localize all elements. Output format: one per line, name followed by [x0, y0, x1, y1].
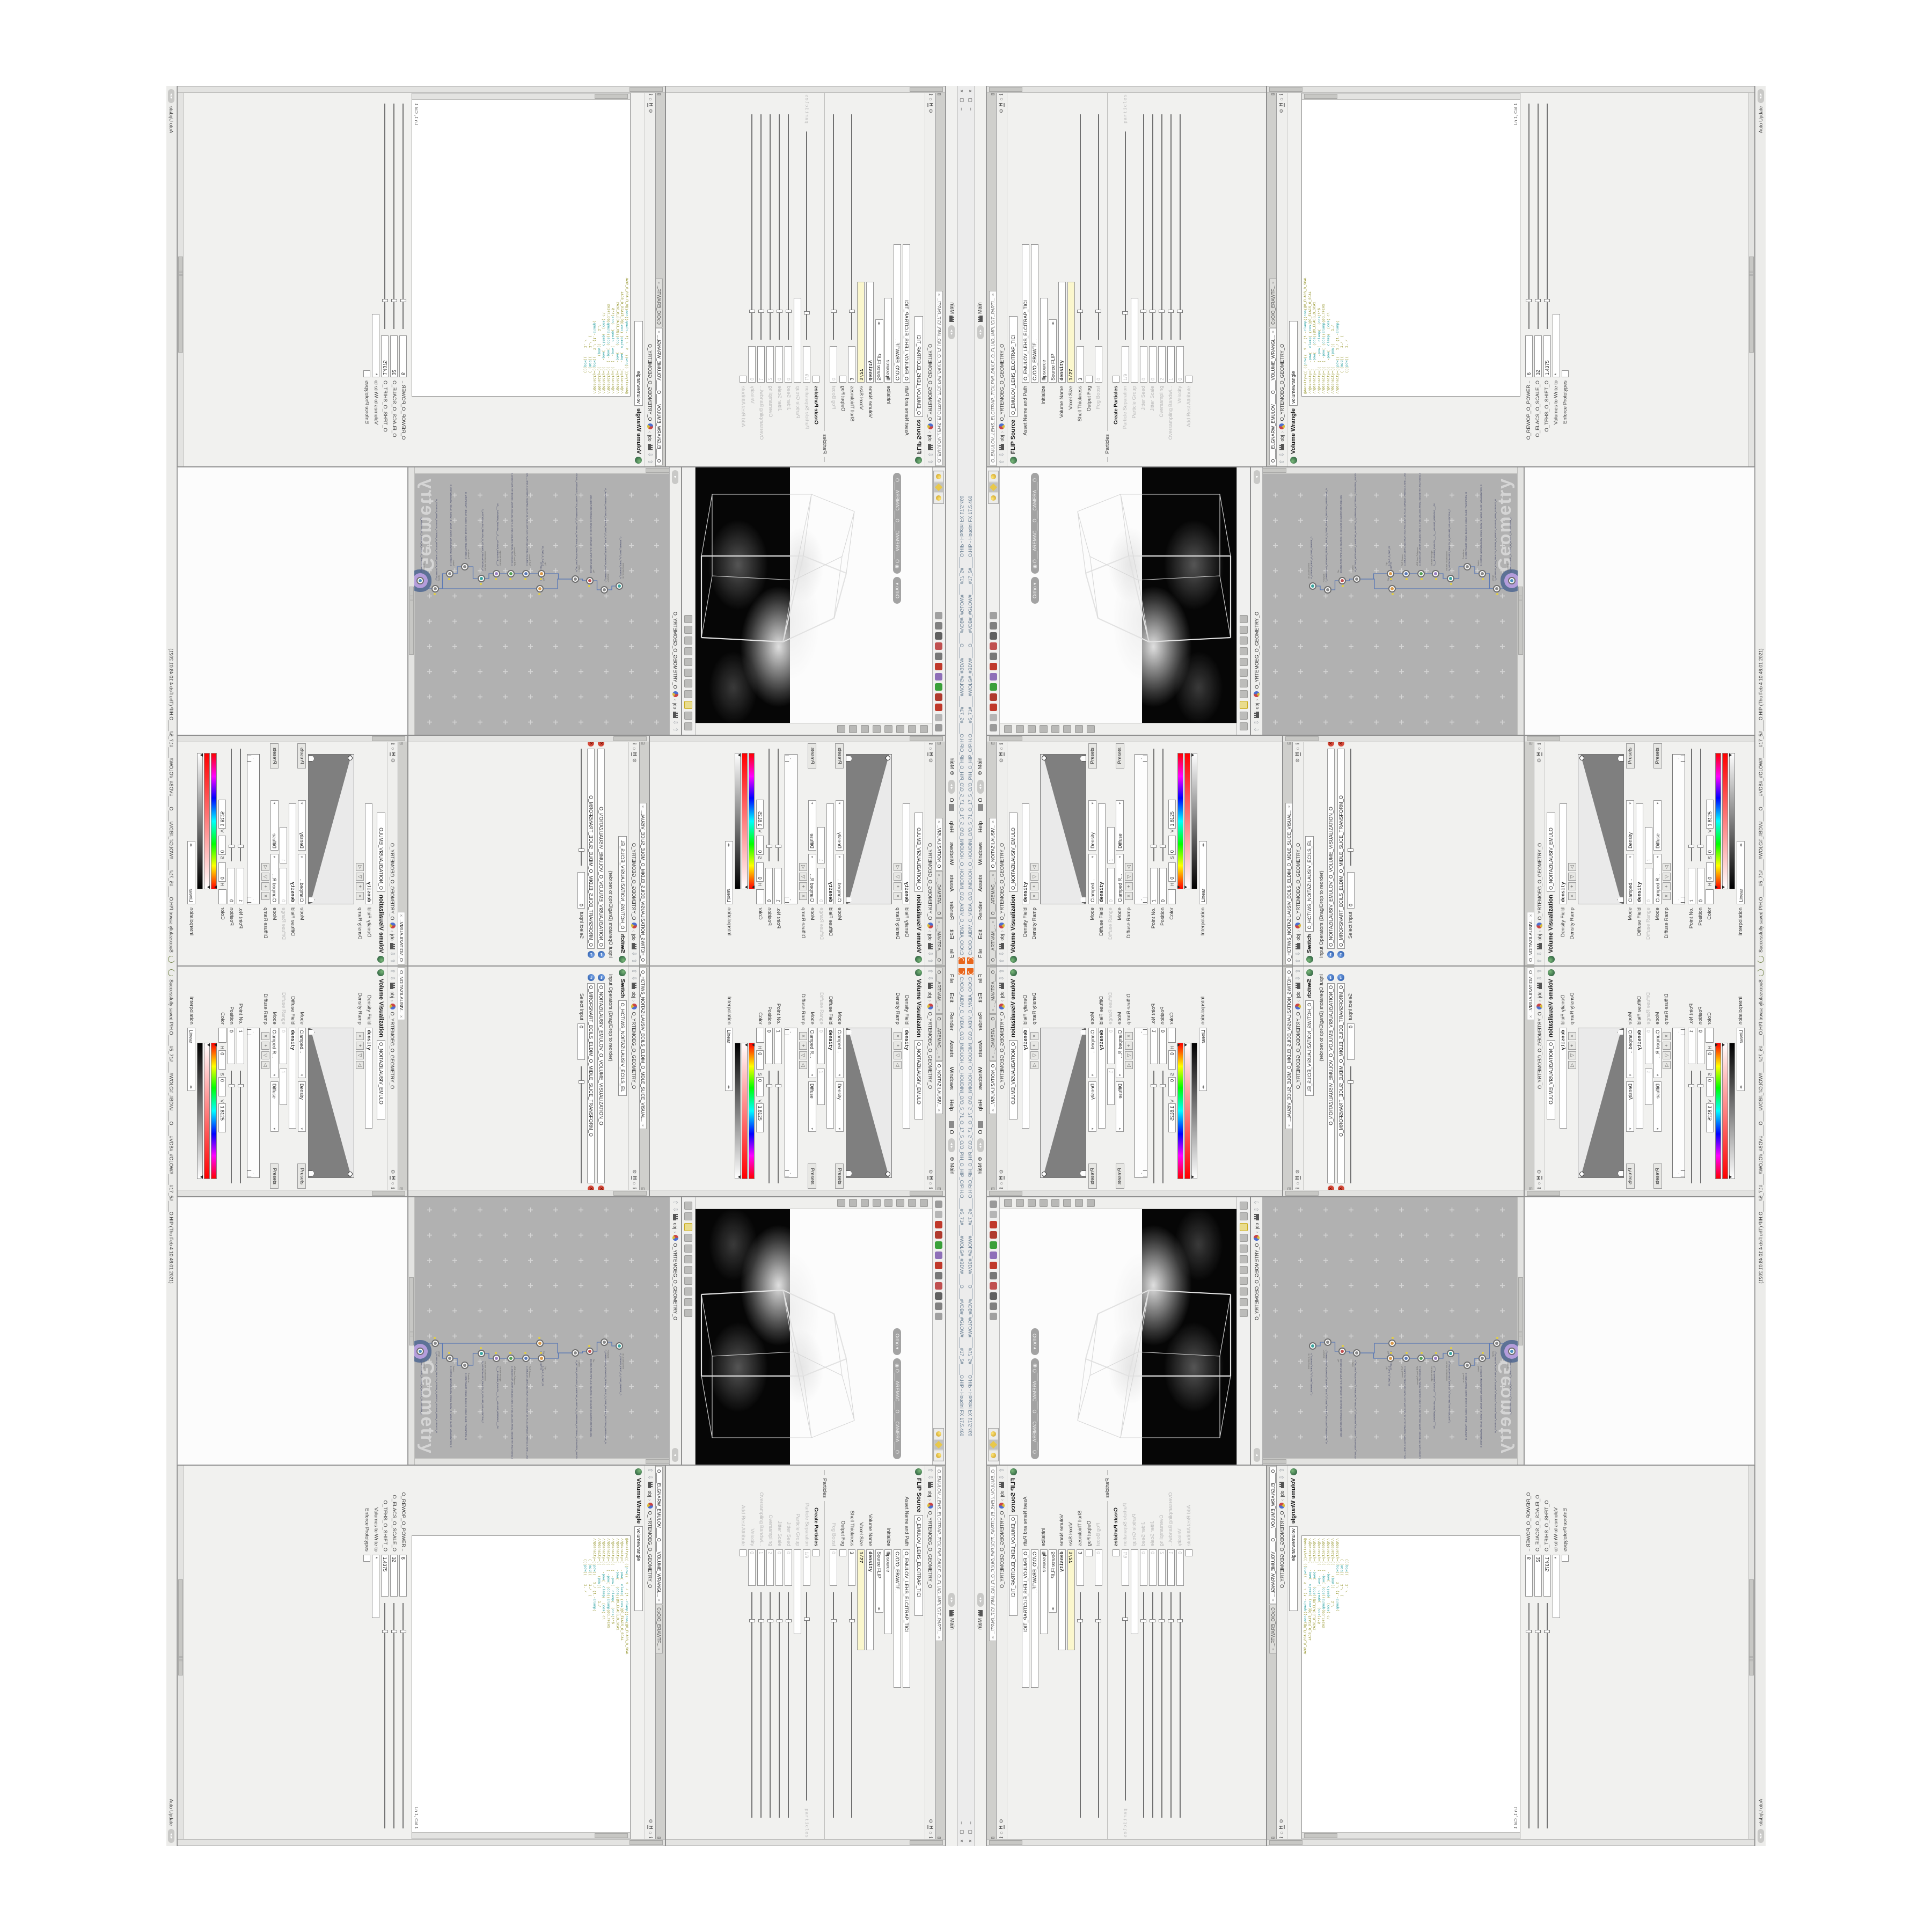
slider-handle[interactable] — [229, 845, 235, 848]
pane-tab[interactable]: O_NOITAZILAUSIV...× — [398, 968, 405, 1020]
dropdown-select[interactable]: Clamped R...▾ — [1116, 854, 1124, 904]
network-editor[interactable]: ⇧ ⇩ obj› O_YRTEMOEG_O_GEOMETRY_O ◂ — [1250, 467, 1524, 735]
param-slider[interactable] — [1700, 749, 1701, 861]
ramp-delete-icon[interactable]: × — [1125, 892, 1133, 900]
slider-handle[interactable] — [383, 299, 389, 302]
breadcrumb-path[interactable]: O_YRTEMOEG_O_GEOMETRY_O — [648, 344, 653, 421]
param-field[interactable]: flipsource — [885, 1549, 892, 1634]
tab-close-icon[interactable]: × — [936, 1109, 941, 1111]
menu-assets[interactable]: Assets — [977, 870, 984, 897]
ramp-prev-icon[interactable]: ◁ — [1568, 1061, 1576, 1069]
slider-handle[interactable] — [1697, 1084, 1703, 1087]
density-ramp-widget[interactable] — [308, 1028, 354, 1178]
pane-tab[interactable]: O_EMULOV_LEHS_ELCITRAP_TICILPMI_DIULF_O_… — [936, 291, 943, 465]
slider-handle[interactable] — [776, 845, 782, 848]
viewport-tool-icon[interactable] — [990, 1241, 997, 1249]
network-node[interactable]: Volume VisualizationO_NOITAZILAUSIV_EMUL… — [478, 1350, 485, 1357]
node-flag-dot[interactable] — [495, 1352, 497, 1354]
dropdown-select[interactable]: Linear◂▸ — [1737, 841, 1745, 904]
network-hscrollbar[interactable]: ⠿⠿ — [1517, 1197, 1524, 1465]
node-name-field[interactable]: O_HCTIWS_NOITAZILAUSIV_ECILS_EL — [618, 836, 627, 932]
breadcrumb-path[interactable]: O_YRTEMOEG_O_GEOMETRY_O — [928, 344, 933, 421]
param-field[interactable]: C:/O/O_ERAWTF... — [894, 244, 902, 383]
slider-handle[interactable] — [1095, 1619, 1101, 1622]
scene-viewport[interactable]: Ortho ▾ ◉ O___AREMAC___O___CAMERA___O — [986, 1197, 1250, 1465]
sat-marker[interactable] — [207, 885, 210, 889]
context-label[interactable]: obj — [999, 435, 1005, 442]
menu-edit[interactable]: Edit — [949, 988, 955, 1007]
param-value-field[interactable]: density — [365, 803, 373, 904]
network-path[interactable]: O_YRTEMOEG_O_GEOMETRY_O — [1254, 1243, 1260, 1320]
pane-scrollbar[interactable] — [1267, 1839, 1754, 1846]
slider-handle[interactable] — [759, 310, 765, 313]
ramp-add-icon[interactable]: + — [1568, 1042, 1576, 1050]
viewport-mode-icon[interactable] — [1051, 1199, 1059, 1207]
ramp-flip-icon[interactable]: ▽ — [1663, 873, 1671, 881]
gear-icon[interactable]: ⚙ — [999, 1819, 1005, 1824]
param-value-field[interactable]: density — [1022, 803, 1029, 904]
houdini-help-icon[interactable]: H — [1537, 1176, 1542, 1180]
node-name-field[interactable]: O_NOITAZILAUSIV_EMULO — [377, 813, 385, 892]
code-vscrollbar[interactable] — [1302, 1832, 1520, 1839]
param-field[interactable]: flipsource — [1040, 298, 1048, 383]
viewport-mode-icon[interactable] — [920, 1199, 928, 1207]
ramp-flip-icon[interactable]: ▽ — [894, 873, 902, 881]
nav-down-icon[interactable]: ⇩ — [1279, 1475, 1285, 1480]
tab-close-icon[interactable]: × — [640, 806, 645, 808]
tab-close-icon[interactable]: × — [991, 1109, 996, 1111]
presets-button[interactable]: Presets — [1088, 743, 1097, 769]
dropdown-select[interactable]: Clamped R...▾ — [1653, 854, 1662, 904]
network-node[interactable]: SwitchO_HCTIWS_YRTEMOEG_LANRETXE_LANRETN… — [572, 575, 579, 583]
pane-scrollbar[interactable] — [1525, 736, 1754, 742]
param-field[interactable]: 0 — [1159, 868, 1167, 904]
ramp-flip-icon[interactable]: ▽ — [799, 873, 807, 881]
viewport-mode-icon[interactable] — [1075, 725, 1083, 733]
slider-handle[interactable] — [383, 1630, 389, 1633]
slider-handle[interactable] — [831, 310, 837, 313]
menu-file[interactable]: File — [949, 969, 955, 988]
color-swatch[interactable] — [218, 889, 226, 904]
checkbox[interactable] — [1086, 376, 1093, 383]
viewport-tool-icon[interactable] — [990, 1292, 997, 1300]
pane-tab[interactable]: C:/O/O_ERAWTF...× — [1269, 279, 1276, 327]
nav-down-icon[interactable]: ⇩ — [1254, 1207, 1260, 1212]
param-slider[interactable] — [1350, 749, 1351, 866]
dropdown-select[interactable]: Source FLIP◂▸ — [1049, 1549, 1057, 1613]
pane-tab[interactable]: O_HCTIWS_NOITAZILAUSIV_ECILS_ELDIM_O_MDL… — [1285, 968, 1292, 1129]
slider-handle[interactable] — [1697, 845, 1703, 848]
breadcrumb-path[interactable]: O_YRTEMOEG_O_GEOMETRY_O — [1296, 843, 1301, 920]
ramp-point-marker[interactable] — [1679, 1029, 1685, 1035]
ramp-add-icon[interactable]: + — [1663, 882, 1671, 890]
slider-handle[interactable] — [777, 1619, 783, 1622]
value-gradient[interactable] — [735, 753, 741, 889]
param-slider[interactable] — [1161, 114, 1162, 340]
param-field[interactable] — [1131, 1549, 1138, 1634]
param-slider[interactable] — [1125, 1592, 1126, 1801]
display-option-icon[interactable] — [1240, 1309, 1248, 1317]
display-option-icon[interactable] — [1240, 1266, 1248, 1274]
viewport-tool-icon[interactable] — [935, 1252, 943, 1259]
breadcrumb-path[interactable]: O_YRTEMOEG_O_GEOMETRY_O — [648, 1511, 653, 1588]
checkbox[interactable] — [813, 1549, 819, 1556]
node-flag-dot[interactable] — [1390, 1352, 1392, 1354]
viewport-tool-icon[interactable] — [990, 1313, 997, 1320]
display-option-icon[interactable] — [685, 690, 693, 698]
gear-icon[interactable]: ⚙ — [647, 1819, 653, 1824]
hue-gradient[interactable] — [1177, 753, 1183, 889]
presets-button[interactable]: Presets — [808, 1163, 817, 1189]
viewport-mode-icon[interactable] — [896, 725, 904, 733]
hue-gradient[interactable] — [211, 1043, 217, 1179]
param-slider[interactable] — [1153, 749, 1154, 861]
viewport-tool-icon[interactable] — [935, 1221, 943, 1228]
val-marker[interactable] — [1729, 1175, 1732, 1179]
menu-windows[interactable]: Windows — [949, 1062, 955, 1095]
pane-scrollbar[interactable] — [178, 736, 407, 742]
context-label[interactable]: obj — [1537, 991, 1542, 998]
param-slider[interactable] — [1098, 1592, 1099, 1818]
display-option-icon[interactable] — [1240, 690, 1248, 698]
network-node[interactable]: Volume VisualizationO_NOITAZILAUSIV_EMUL… — [1447, 1350, 1454, 1357]
desktop-tab-main-right[interactable]: Main — [977, 1610, 983, 1630]
hsv-field[interactable]: 1.8125 — [757, 1103, 764, 1132]
tab-close-icon[interactable]: × — [936, 921, 941, 924]
param-slider[interactable] — [852, 1592, 853, 1818]
dropdown-select[interactable]: Clamped R...▾ — [1653, 1028, 1662, 1078]
param-field[interactable]: 1 — [1688, 868, 1695, 904]
color-swatch[interactable] — [1168, 1028, 1176, 1043]
range-field[interactable]: 1 — [1645, 827, 1652, 863]
node-flag-dot[interactable] — [448, 1352, 450, 1354]
param-value-field[interactable]: density — [1058, 1549, 1066, 1650]
param-field[interactable]: 1/9 — [1122, 1549, 1129, 1586]
param-field[interactable]: 0 — [1095, 1549, 1102, 1586]
slider-handle[interactable] — [1140, 1619, 1146, 1622]
diffuse-ramp-widget[interactable] — [247, 1028, 260, 1178]
maximize-button[interactable]: ▢ — [967, 1828, 973, 1836]
range-field[interactable]: 1 — [1107, 1069, 1115, 1105]
ramp-point-marker[interactable] — [308, 897, 314, 903]
pane-scrollbar[interactable] — [408, 736, 649, 742]
viewport-mode-icon[interactable] — [1016, 1199, 1024, 1207]
context-label[interactable]: obj — [928, 435, 933, 442]
viewport-tool-icon[interactable] — [935, 1313, 943, 1320]
ramp-point-marker[interactable] — [1618, 897, 1624, 903]
slider-handle[interactable] — [1348, 848, 1353, 852]
desktop-layout-icon[interactable] — [978, 1121, 983, 1128]
range-field[interactable]: 0 — [1645, 868, 1652, 904]
viewport-tool-icon[interactable] — [935, 612, 943, 619]
value-gradient[interactable] — [1729, 753, 1735, 889]
param-slider[interactable] — [769, 749, 770, 861]
network-node[interactable]: an_CubeSphereO_EREHPS_EBUC_O_CUBE_SPHERE… — [616, 582, 623, 590]
hue-gradient[interactable] — [1715, 753, 1721, 889]
saturation-gradient[interactable] — [1184, 753, 1190, 889]
dropdown-select[interactable]: Diffuse▾ — [270, 800, 279, 851]
presets-button[interactable]: Presets — [836, 1163, 844, 1189]
slider-handle[interactable] — [750, 1619, 756, 1622]
param-slider[interactable] — [807, 131, 808, 340]
dropdown-select[interactable]: Density▾ — [298, 1081, 306, 1132]
network-node[interactable]: SwitchO_HCTIWS_NOITAZILAUSIV_ECILS_ELDIM… — [1479, 1355, 1486, 1362]
viewport-tool-icon[interactable] — [935, 1262, 943, 1269]
presets-button[interactable]: Presets — [1116, 743, 1124, 769]
param-field[interactable]: 32 — [391, 335, 398, 377]
param-slider[interactable] — [240, 1071, 241, 1183]
houdini-help-icon[interactable]: H — [999, 752, 1005, 756]
network-node[interactable]: TransformO_MROFSNART_ECILS_ELDIM_O_MIDLE… — [461, 1362, 469, 1369]
network-node[interactable]: ClipO_PILC_O_CLIP_O2 — [1387, 570, 1394, 577]
ramp-point-marker[interactable] — [1141, 756, 1147, 762]
param-field[interactable]: 3 — [848, 1549, 856, 1586]
pane-scrollbar[interactable] — [650, 736, 945, 742]
display-option-icon[interactable] — [685, 647, 693, 655]
node-name-field[interactable]: O_NOITAZILAUSIV_EMULO — [914, 1040, 923, 1119]
ramp-flip-icon[interactable]: ▽ — [356, 1051, 364, 1059]
display-option-icon[interactable] — [685, 1309, 693, 1317]
val-marker[interactable] — [200, 1175, 203, 1179]
network-node[interactable]: TransformO_MROFSNART_TLUSER_O_RESULT_TRA… — [416, 577, 424, 584]
checkbox[interactable] — [1086, 1549, 1093, 1556]
network-node[interactable]: PolyWireO_EMARFERIW_NOGYLOP_EREHPS_EBUC_… — [601, 1338, 608, 1346]
houdini-help-icon[interactable]: H — [648, 103, 653, 107]
presets-button[interactable]: Presets — [1653, 743, 1662, 769]
ramp-add-icon[interactable]: + — [894, 1042, 902, 1050]
viewport-tool-icon[interactable] — [990, 1211, 997, 1218]
hue-gradient[interactable] — [749, 1043, 755, 1179]
value-gradient[interactable] — [1729, 1043, 1735, 1179]
tab-close-icon[interactable]: × — [936, 294, 941, 296]
ramp-handle-end[interactable] — [1579, 1172, 1584, 1176]
display-option-icon[interactable] — [1240, 626, 1248, 634]
operator-field[interactable]: O_MROFSNART_ECILS_ELDIM_O_MIDLE_SLICE_TR… — [588, 983, 595, 1183]
gear-icon[interactable]: ⚙ — [999, 109, 1005, 114]
search-icon[interactable]: ○ — [647, 98, 653, 101]
param-slider[interactable] — [1691, 1071, 1692, 1183]
network-editor[interactable]: ⇧ ⇩ obj› O_YRTEMOEG_O_GEOMETRY_O ◂ — [408, 1197, 682, 1465]
hsv-field[interactable]: 0 — [219, 836, 226, 855]
breadcrumb-path[interactable]: O_YRTEMOEG_O_GEOMETRY_O — [928, 1511, 933, 1588]
sat-marker[interactable] — [745, 885, 748, 889]
param-field[interactable]: 0 — [766, 1028, 773, 1064]
viewport-tool-icon[interactable] — [935, 1302, 943, 1310]
context-label[interactable]: obj — [1254, 1223, 1260, 1229]
search-icon[interactable]: ○ — [390, 747, 396, 750]
param-slider[interactable] — [852, 114, 853, 340]
breadcrumb-path[interactable]: O_YRTEMOEG_O_GEOMETRY_O — [928, 843, 933, 920]
pane-tab[interactable]: O___ARTNAM_...× — [989, 968, 996, 1014]
nav-down-icon[interactable]: ⇩ — [999, 952, 1005, 956]
network-node[interactable]: SwitchO_HCTIWS_YRTEMOEG_LANRETXE_LANRETN… — [1353, 575, 1360, 583]
tab-close-icon[interactable]: × — [991, 921, 996, 924]
tab-close-icon[interactable]: × — [1287, 806, 1292, 808]
node-name-field[interactable]: volumewrangle — [1289, 321, 1298, 406]
expression-field[interactable]: 1/27 — [858, 282, 865, 383]
param-field[interactable]: 1.4375 — [1543, 1555, 1551, 1597]
ramp-point-marker[interactable] — [247, 1029, 253, 1035]
tab-close-icon[interactable]: × — [1271, 1599, 1276, 1601]
info-icon[interactable]: ℹ — [390, 743, 396, 745]
nav-up-icon[interactable]: ⇧ — [390, 969, 396, 974]
operator-field[interactable]: O_NOITAZILAUSIV_EMULOV_O_VOLUME_VISUALIZ… — [598, 983, 605, 1183]
viewport-mode-icon[interactable] — [1075, 1199, 1083, 1207]
tab-close-icon[interactable]: × — [656, 1648, 661, 1651]
param-slider[interactable] — [761, 1592, 762, 1818]
menu-scroll-pill[interactable]: ◂ ▸ — [977, 1138, 984, 1152]
tab-close-icon[interactable]: × — [1271, 331, 1276, 333]
ramp-add-icon[interactable]: + — [356, 882, 364, 890]
slider-handle[interactable] — [238, 1084, 244, 1087]
slider-handle[interactable] — [1168, 1619, 1174, 1622]
range-field[interactable]: 1 — [1107, 827, 1115, 863]
param-slider[interactable] — [1180, 1592, 1181, 1818]
ramp-prev-icon[interactable]: ◁ — [799, 863, 807, 871]
param-value-field[interactable]: density — [903, 803, 911, 904]
param-field[interactable]: 0 — [1159, 1028, 1167, 1064]
display-option-icon[interactable] — [685, 1266, 693, 1274]
jump-to-node-button[interactable]: ➜ — [1327, 974, 1334, 981]
color-swatch[interactable] — [756, 1028, 764, 1043]
menu-render[interactable]: Render — [949, 1007, 955, 1035]
nav-down-icon[interactable]: ⇩ — [632, 952, 637, 956]
dropdown-select[interactable]: Diffuse▾ — [1116, 800, 1124, 851]
viewport-tool-icon[interactable] — [990, 663, 997, 670]
display-option-icon[interactable] — [1240, 701, 1248, 709]
node-name-field[interactable]: O_NOITAZILAUSIV_EMULO — [1009, 813, 1018, 892]
ramp-point-marker[interactable] — [785, 1170, 791, 1176]
viewport-mode-icon[interactable] — [1051, 725, 1059, 733]
pane-scrollbar[interactable] — [987, 86, 1266, 93]
expression-field[interactable]: 1/27 — [858, 1549, 865, 1650]
param-field[interactable]: 0 — [785, 346, 793, 383]
viewport-mode-icon[interactable] — [837, 725, 845, 733]
network-node[interactable]: PolyWireO_EMARFERIW_NOGYLOP_EREHPS_EBUC_… — [1324, 1338, 1331, 1346]
nav-up-icon[interactable]: ⇧ — [1254, 1200, 1260, 1205]
menu-scroll-pill-2[interactable]: ◂ ▸ — [977, 325, 984, 339]
viewport-mode-icon[interactable] — [861, 725, 869, 733]
nav-down-icon[interactable]: ⇩ — [928, 952, 933, 956]
param-slider[interactable] — [403, 1603, 404, 1828]
network-node[interactable]: TransformO_MROFSNART_ECILS_ELDIM_O_MIDLE… — [1463, 1362, 1471, 1369]
houdini-help-icon[interactable]: H — [1279, 1825, 1285, 1829]
checkbox[interactable] — [839, 1549, 846, 1556]
dropdown-select[interactable]: Linear◂▸ — [187, 841, 195, 904]
param-field[interactable]: 1 — [237, 868, 245, 904]
range-field[interactable]: 0 — [1107, 868, 1115, 904]
saturation-gradient[interactable] — [742, 1043, 748, 1179]
slider-handle[interactable] — [831, 1619, 837, 1622]
tab-close-icon[interactable]: × — [1271, 1648, 1276, 1651]
node-name-field[interactable]: O_HCTIWS_NOITAZILAUSIV_ECILS_EL — [618, 1000, 627, 1096]
hue-gradient[interactable] — [211, 753, 217, 889]
section-label[interactable]: Particles — [822, 434, 828, 453]
param-slider[interactable] — [778, 749, 779, 861]
param-slider[interactable] — [1350, 1066, 1351, 1183]
ramp-prev-icon[interactable]: ◁ — [894, 863, 902, 871]
node-flag-dot[interactable] — [524, 578, 526, 580]
param-field[interactable]: 0 — [1149, 346, 1157, 383]
pane-scrollbar[interactable] — [178, 1190, 407, 1196]
param-slider[interactable] — [403, 104, 404, 329]
param-field[interactable]: 1.4375 — [382, 1555, 389, 1597]
desktop-tab-main-right[interactable]: Main — [949, 302, 955, 322]
value-gradient[interactable] — [197, 1043, 203, 1179]
info-icon[interactable]: ℹ — [1536, 743, 1542, 745]
slider-handle[interactable] — [1535, 1630, 1541, 1633]
gear-icon[interactable]: ⚙ — [927, 758, 933, 763]
viewport-mode-icon[interactable] — [1087, 725, 1095, 733]
ramp-point-marker[interactable] — [846, 897, 852, 903]
viewport-tool-icon[interactable] — [990, 1302, 997, 1310]
ramp-handle-end[interactable] — [1042, 756, 1046, 760]
tab-close-icon[interactable]: × — [1271, 281, 1276, 284]
ramp-add-icon[interactable]: + — [356, 1042, 364, 1050]
network-node[interactable]: an_CubeSphereO_EREHPS_EBUC_O_CUBE_SPHERE… — [616, 1342, 623, 1350]
slider-handle[interactable] — [1077, 310, 1083, 313]
slider-handle[interactable] — [1544, 1630, 1550, 1633]
desktop-tab-main-right[interactable]: Main — [949, 1610, 955, 1630]
ramp-handle-end[interactable] — [348, 756, 353, 760]
slider-handle[interactable] — [1348, 1080, 1353, 1084]
slider-handle[interactable] — [392, 1630, 398, 1633]
houdini-help-icon[interactable]: H — [390, 752, 396, 756]
close-button[interactable]: × — [960, 1838, 965, 1844]
vex-code-editor[interactable]: @density=(( ((pow(( 1. / (1.-clamp((cos(… — [1301, 1535, 1520, 1839]
dropdown-select[interactable]: Clamped R...▾ — [270, 1028, 279, 1078]
node-flag-dot[interactable] — [495, 578, 497, 580]
node-flag-dot[interactable] — [1342, 1345, 1344, 1347]
shade-flat-icon[interactable] — [935, 493, 943, 503]
slider-handle[interactable] — [1095, 310, 1101, 313]
context-label[interactable]: obj — [673, 1223, 678, 1229]
nav-down-icon[interactable]: ⇩ — [390, 976, 396, 980]
pane-tab[interactable]: O___AREMAC_...× — [936, 1014, 943, 1061]
slider-handle[interactable] — [767, 1084, 773, 1087]
param-field[interactable]: 3 — [1077, 346, 1084, 383]
pane-tab[interactable]: O___AREMAC_...× — [989, 1014, 996, 1061]
checkbox[interactable] — [740, 1549, 747, 1556]
search-icon[interactable]: ○ — [1536, 747, 1542, 750]
network-node[interactable]: File360.M03.PET5.TRPCLS.O_SQUIREG_O_GENI… — [586, 577, 594, 584]
dropdown-select[interactable]: Source FLIP◂▸ — [1049, 319, 1057, 383]
saturation-gradient[interactable] — [1184, 1043, 1190, 1179]
checkbox[interactable] — [1562, 1555, 1569, 1562]
range-field[interactable]: 1 — [1645, 1069, 1652, 1105]
param-field[interactable]: 0 — [228, 1028, 236, 1064]
viewport-tool-icon[interactable] — [990, 1282, 997, 1290]
network-node[interactable]: MergeO_ECAFRUS_HTIW_EMULOV_EGREM_O_MERGE… — [431, 1340, 439, 1347]
param-slider[interactable] — [779, 114, 780, 340]
info-icon[interactable]: ℹ — [631, 743, 637, 745]
ramp-prev-icon[interactable]: ◁ — [1030, 1061, 1038, 1069]
saturation-gradient[interactable] — [1722, 753, 1728, 889]
param-slider[interactable] — [1538, 104, 1539, 329]
presets-button[interactable]: Presets — [1626, 1163, 1635, 1189]
network-node[interactable]: VDB from PolygonsO_SNOGYLOP_MORF_EMULOV_… — [507, 570, 515, 577]
network-editor[interactable]: ⇧ ⇩ obj› O_YRTEMOEG_O_GEOMETRY_O ◂ — [1250, 1197, 1524, 1465]
pane-tab[interactable]: O_EMULOV_LEHS_ELCITRAP_TICILPMI_DIULF_O_… — [989, 1467, 996, 1641]
display-option-icon[interactable] — [685, 1255, 693, 1263]
nav-up-icon[interactable]: ⇧ — [673, 727, 678, 732]
viewport-tool-icon[interactable] — [935, 642, 943, 650]
param-field[interactable]: 32 — [1534, 1555, 1542, 1597]
dropdown-select[interactable]: Clamped R...▾ — [270, 854, 279, 904]
display-option-icon[interactable] — [1240, 679, 1248, 687]
jump-to-node-button[interactable]: ➜ — [588, 951, 595, 958]
checkbox[interactable] — [1562, 370, 1569, 377]
